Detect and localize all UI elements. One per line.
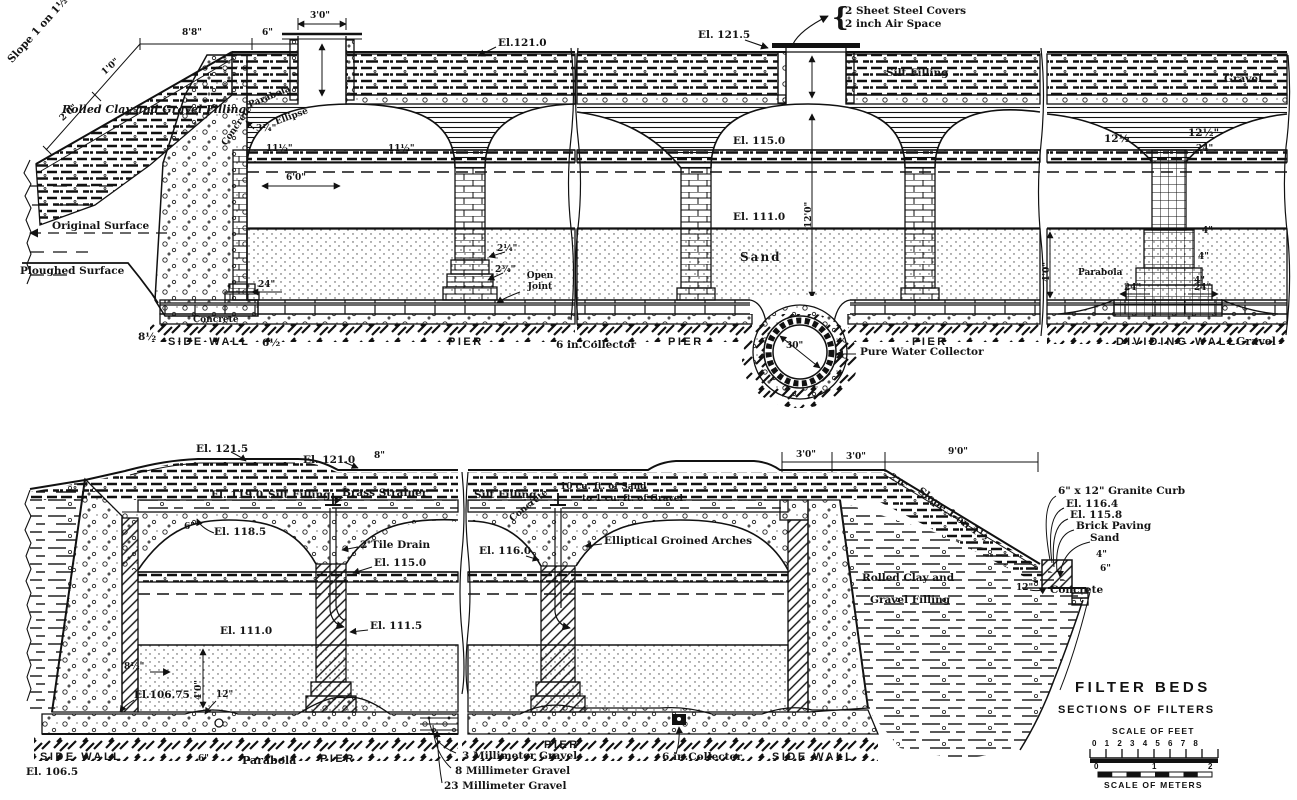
dim-30-collector: 30" bbox=[786, 341, 803, 352]
dim-12-0: 12'0" bbox=[804, 202, 815, 228]
label-gravel-bottom-right-top: Gravel bbox=[1236, 336, 1276, 347]
label-el-106-5: El. 106.5 bbox=[26, 767, 78, 778]
dim-6-floor: 6" bbox=[198, 754, 209, 765]
dim-4-step-1: 4" bbox=[1202, 226, 1213, 237]
dim-12-5-right: 12½" bbox=[1188, 128, 1219, 139]
label-ratio-gravel: to 1 cu. ft. of Gravel bbox=[582, 494, 683, 505]
label-el-119-0: El. 119.0 bbox=[211, 490, 263, 501]
label-gravel-3mm: 3 Millimeter Gravel bbox=[462, 751, 577, 762]
dim-2-75: 2¾" bbox=[495, 265, 515, 276]
dim-11-5-right: 11½" bbox=[388, 144, 415, 155]
dim-4-step-2: 4" bbox=[1198, 252, 1209, 263]
label-el-121-0-top: El.121.0 bbox=[498, 38, 547, 49]
label-concrete-curb: Concrete bbox=[1050, 585, 1103, 596]
label-parabola-floor: Parabola bbox=[242, 755, 296, 766]
label-el-111-0-top: El. 111.0 bbox=[733, 212, 785, 223]
dim-3-0-manhole: 3'0" bbox=[310, 11, 330, 22]
label-el-121-5-bottom: El. 121.5 bbox=[196, 444, 248, 455]
label-el-115-0-top: El. 115.0 bbox=[733, 136, 785, 147]
dim-12-5-left: 12½ bbox=[1104, 134, 1130, 145]
scale-of-feet-label: SCALE OF FEET bbox=[1112, 726, 1195, 736]
label-steel-covers: 2 Sheet Steel Covers bbox=[845, 6, 966, 17]
label-el-115-0-bottom: El. 115.0 bbox=[374, 558, 426, 569]
label-pier-top-1: PIER bbox=[448, 336, 484, 348]
dim-6-crown: 6" bbox=[184, 522, 195, 533]
label-side-wall-top: SIDE WALL bbox=[168, 336, 250, 348]
label-side-wall-bottom-right: SIDE WALL bbox=[772, 751, 854, 763]
dim-8-surface: 8" bbox=[374, 451, 385, 462]
label-side-wall-bottom-left: SIDE WALL bbox=[40, 751, 122, 763]
label-pier-bottom-1: PIER bbox=[320, 753, 356, 765]
label-el-111-0-bottom: El. 111.0 bbox=[220, 626, 272, 637]
label-gravel-23mm: 23 Millimeter Gravel bbox=[444, 781, 566, 792]
scale-meter-0: 0 bbox=[1094, 762, 1098, 771]
label-brass-strainer: Brass Strainer bbox=[342, 488, 427, 499]
scale-feet-numbers: 0 1 2 3 4 5 6 7 8 bbox=[1092, 739, 1201, 748]
dim-6-0: 6'0" bbox=[286, 173, 306, 184]
label-gravel-top-right: Gravel bbox=[1224, 74, 1262, 85]
filter-beds-drawing-sheet: Slope 1 on 1½ 2'0" 1'0" 8'8" 6" 3'0" Rol… bbox=[0, 0, 1297, 800]
scale-meter-2: 2 bbox=[1208, 762, 1212, 771]
label-sand-curb: Sand bbox=[1090, 533, 1119, 544]
dim-12-floor: 12" bbox=[216, 690, 233, 701]
label-el-118-5: El. 118.5 bbox=[214, 527, 266, 538]
dim-8-5-sidewall: 8½ bbox=[138, 332, 156, 343]
label-parabola-dividing: Parabola bbox=[1078, 268, 1122, 279]
dim-12-curb: 12" bbox=[1016, 583, 1033, 594]
dim-3-0-a: 3'0" bbox=[796, 450, 816, 461]
label-tile-drain: 2 Tile Drain bbox=[360, 540, 430, 551]
dim-8-5-bottom: 8½" bbox=[124, 662, 144, 673]
dim-6-top: 6" bbox=[262, 28, 273, 39]
dim-6-curb: 6" bbox=[1100, 564, 1111, 575]
label-el-121-5-top: El. 121.5 bbox=[698, 30, 750, 41]
scale-meter-1: 1 bbox=[1152, 762, 1156, 771]
dim-2-25: 2¼" bbox=[497, 244, 517, 255]
label-pure-water-collector: Pure Water Collector bbox=[860, 347, 984, 358]
dim-3-0-b: 3'0" bbox=[846, 452, 866, 463]
drawing-subtitle: SECTIONS OF FILTERS bbox=[1058, 704, 1215, 716]
label-brick-paving: Brick Paving bbox=[1076, 521, 1151, 532]
label-gravel-8mm: 8 Millimeter Gravel bbox=[455, 766, 570, 777]
label-el-111-5: El. 111.5 bbox=[370, 621, 422, 632]
dim-11-5-left: 11½" bbox=[266, 144, 293, 155]
label-granite-curb: 6" x 12" Granite Curb bbox=[1058, 486, 1185, 497]
label-ratio-sand: 10 cu. ft. of Sand bbox=[560, 482, 646, 493]
dim-24-base-right: 24" bbox=[1194, 283, 1211, 294]
dim-24-base-left: 24" bbox=[1124, 283, 1141, 294]
dim-4-0-bottom: 4'0" bbox=[194, 680, 205, 700]
drawing-title: FILTER BEDS bbox=[1075, 679, 1211, 696]
label-original-surface: Original Surface bbox=[52, 221, 149, 232]
label-dividing-wall: DIVIDING WALL bbox=[1116, 336, 1238, 348]
label-6in-collector-top: 6 in.Collector bbox=[556, 340, 636, 351]
label-el-106-75: El.106.75 bbox=[134, 690, 190, 701]
dim-4-0-top: 4'0" bbox=[1042, 262, 1053, 282]
scale-of-meters-label: SCALE OF METERS bbox=[1104, 780, 1203, 790]
label-6in-collector-bottom: 6 in.Collector bbox=[662, 752, 742, 763]
dim-9-0: 9'0" bbox=[948, 447, 968, 458]
label-ploughed-surface: Ploughed Surface bbox=[20, 266, 124, 277]
dim-24-wallhead: 24" bbox=[1196, 144, 1213, 155]
label-el-121-0-bottom: El. 121.0 bbox=[303, 455, 355, 466]
dim-3-25: 3¼" bbox=[256, 124, 276, 135]
label-pier-bottom-2: PIER bbox=[544, 739, 580, 751]
label-silt-filling-top: Silt Filling bbox=[886, 68, 948, 79]
label-rolled-clay-bottom-1: Rolled Clay and bbox=[862, 573, 954, 584]
label-concrete-footing: Concrete bbox=[193, 315, 239, 326]
label-sand-top: Sand bbox=[740, 252, 782, 263]
label-rolled-clay-top: Rolled Clay and Gravel Filling bbox=[62, 104, 246, 115]
dim-6-5-sidewall: 6½ bbox=[262, 338, 280, 349]
dim-24-sidewall: 24" bbox=[258, 280, 275, 291]
label-rolled-clay-bottom-2: Gravel Filling bbox=[870, 595, 950, 606]
label-groined-arches: Elliptical Groined Arches bbox=[604, 536, 752, 547]
dim-4-curb: 4" bbox=[1096, 550, 1107, 561]
label-pier-top-2: PIER bbox=[668, 336, 704, 348]
label-air-space: 2 inch Air Space bbox=[845, 19, 941, 30]
label-el-116-0: El. 116.0 bbox=[479, 546, 531, 557]
dim-8-8: 8'8" bbox=[182, 28, 202, 39]
label-silt-filling-bottom-left: Silt Filling bbox=[268, 490, 330, 501]
label-open-joint: Open Joint bbox=[518, 271, 562, 293]
top-section-drawing bbox=[22, 16, 1290, 408]
